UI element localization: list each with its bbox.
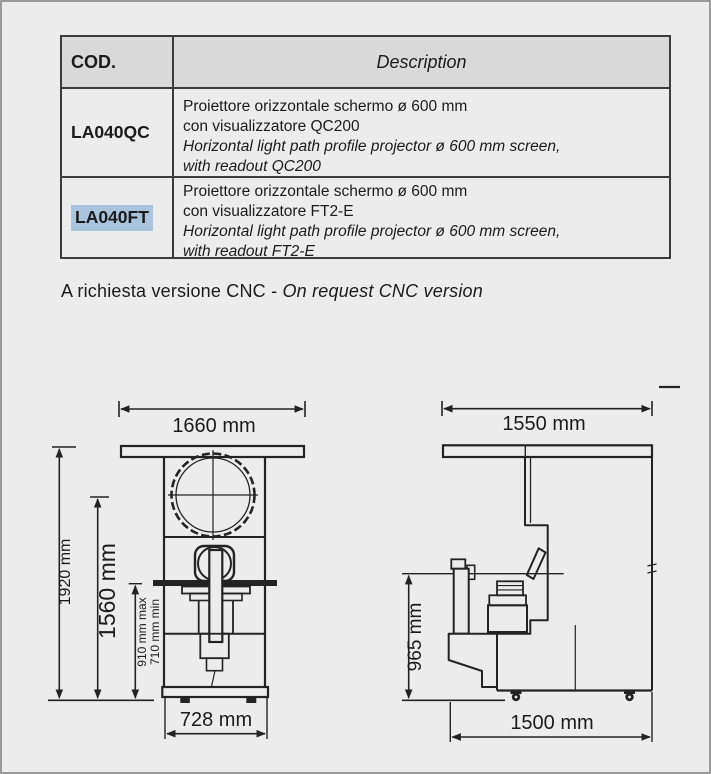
product-code-cell: LA040QC: [62, 89, 174, 176]
front-view-drawing: 1660 mm: [42, 380, 347, 752]
dim-height-screen-label: 1560 mm: [94, 543, 120, 639]
quill-column: [209, 550, 222, 642]
dimension-width-top: 1660 mm: [119, 401, 305, 437]
side-view-drawing: 1550 mm: [397, 380, 709, 748]
dim-stage-height-label: 965 mm: [405, 603, 426, 672]
dim-stage-min-label: 710 mm min: [148, 599, 162, 665]
screen-blade: [527, 548, 546, 579]
product-code-cell: LA040FT: [62, 178, 174, 257]
dim-stage-max-label: 910 mm max: [135, 597, 149, 666]
table-row-la040qc: LA040QC Proiettore orizzontale schermo ø…: [62, 87, 669, 176]
product-description-cell: Proiettore orizzontale schermo ø 600 mm …: [174, 178, 669, 257]
product-code-highlighted: LA040FT: [71, 205, 153, 231]
screen-circle: [168, 450, 258, 540]
dimension-height-total: 1920 mm: [52, 447, 76, 698]
table-header-row: COD. Description: [62, 37, 669, 87]
dim-height-total-label: 1920 mm: [57, 539, 74, 606]
caster-back: [624, 691, 635, 702]
base-plate: [162, 687, 268, 697]
product-description-cell: Proiettore orizzontale schermo ø 600 mm …: [174, 89, 669, 176]
cnc-note-english: On request CNC version: [282, 281, 482, 301]
dimension-stage-height-side: 965 mm: [402, 574, 427, 698]
dimension-width-base: 728 mm: [165, 698, 267, 739]
lens-stack: [488, 581, 527, 632]
dimension-height-screen-center: 1560 mm: [90, 497, 120, 698]
description-line: Proiettore orizzontale schermo ø 600 mm: [183, 182, 669, 202]
foot-left: [180, 697, 190, 703]
description-line: con visualizzatore FT2-E: [183, 202, 669, 222]
product-table: COD. Description LA040QC Proiettore oriz…: [60, 35, 671, 259]
caster-front: [511, 691, 522, 702]
product-code: LA040QC: [71, 122, 150, 143]
machine-side-view: [425, 445, 656, 701]
description-line: Horizontal light path profile projector …: [183, 137, 669, 157]
description-line: con visualizzatore QC200: [183, 117, 669, 137]
dimension-depth-top: 1550 mm: [442, 401, 652, 435]
header-description: Description: [174, 37, 669, 87]
dim-depth-top-label: 1550 mm: [502, 413, 585, 435]
dim-width-top-label: 1660 mm: [172, 415, 255, 437]
stage-post: [451, 559, 474, 633]
description-line: with readout QC200: [183, 157, 669, 177]
lower-wedge: [449, 634, 497, 687]
cnc-note-italian: A richiesta versione CNC -: [61, 281, 282, 301]
foot-right: [246, 697, 256, 703]
catalog-page: COD. Description LA040QC Proiettore oriz…: [0, 0, 711, 774]
description-line: Proiettore orizzontale schermo ø 600 mm: [183, 97, 669, 117]
dim-depth-base-label: 1500 mm: [510, 712, 593, 734]
top-plate-side: [443, 445, 652, 457]
description-line: with readout FT2-E: [183, 242, 669, 262]
header-cod: COD.: [62, 37, 174, 87]
description-line: Horizontal light path profile projector …: [183, 222, 669, 242]
dimension-stage-height: 910 mm max 710 mm min: [129, 584, 162, 698]
table-row-la040ft: LA040FT Proiettore orizzontale schermo ø…: [62, 176, 669, 257]
dim-width-base-label: 728 mm: [180, 709, 252, 731]
cnc-note: A richiesta versione CNC - On request CN…: [61, 281, 483, 302]
